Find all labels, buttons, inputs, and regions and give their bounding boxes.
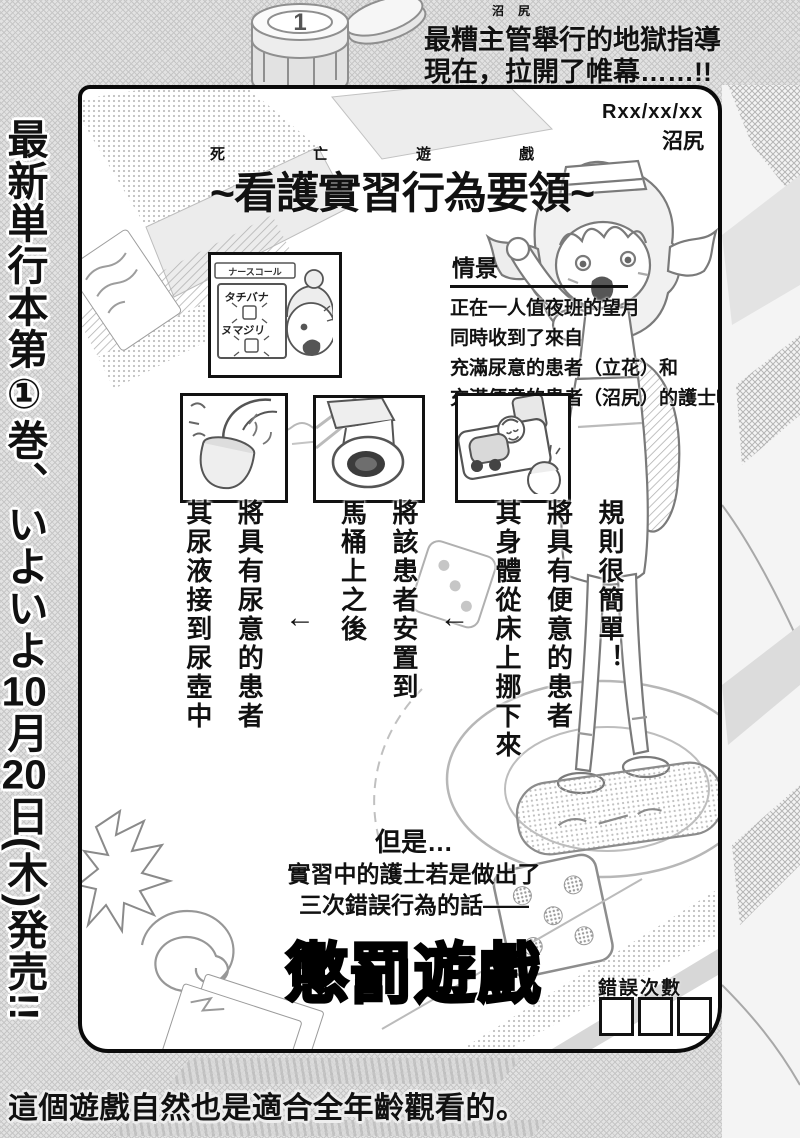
step-arrow-icon: ← — [285, 601, 315, 829]
bed-step-panel — [455, 393, 571, 503]
toilet-step-panel — [313, 395, 425, 503]
rule-step2-line2: 馬桶上之後 — [337, 499, 367, 829]
date-label: Rxx/xx/xx — [602, 101, 703, 124]
mistake-counter-boxes — [599, 997, 712, 1036]
banner-day-number: 10 — [1, 671, 47, 712]
author-signature: 沼尻 — [662, 125, 704, 155]
rule-step1-line2: 其身體從床上挪下來 — [491, 499, 521, 829]
penalty-but: 但是… — [224, 822, 604, 859]
penalty-game-title: 懲罰遊戲 — [224, 921, 604, 1016]
rule-step2-line1: 將該患者安置到 — [388, 499, 418, 829]
banner-part1: 最新単行本第①巻、いよいよ — [1, 118, 47, 671]
urinal-step-panel — [180, 393, 288, 503]
penalty-block: 但是… 實習中的護士若是做出了 三次錯誤行為的話—— 懲罰遊戲 — [224, 822, 604, 1013]
top-banner-furigana: 沼尻 — [492, 2, 544, 19]
speed-streak — [169, 1058, 521, 1084]
page-title: ~看護實習行為要領~ — [122, 159, 682, 221]
rule-step3-line1: 將具有尿意的患者 — [233, 499, 263, 829]
toilet-illustration — [316, 398, 416, 494]
urinal-illustration — [183, 396, 279, 494]
rules-block: 其尿液接到尿壺中 將具有尿意的患者 ← 馬桶上之後 將該患者安置到 ← 其身體從… — [182, 499, 624, 829]
banner-date-number: 20 — [1, 754, 47, 795]
penalty-condition-1: 實習中的護士若是做出了 — [224, 859, 604, 890]
scenario-block: 情景 正在一人值夜班的望月 同時收到了來自 充滿尿意的患者（立花）和 充滿便意的… — [450, 249, 710, 414]
patient-name-1: タチバナ — [224, 290, 269, 304]
top-banner-line2: 現在，拉開了帷幕……!! — [424, 50, 712, 89]
banner-part3: 日(木)発売!! — [1, 795, 47, 1022]
nurse-call-inset-panel: ナースコール タチバナ ヌマジリ — [208, 252, 342, 378]
poker-chips-illustration: 1 — [222, 0, 432, 88]
mistake-counter-label: 錯誤次數 — [598, 973, 682, 1000]
banner-part2: 月 — [1, 712, 47, 754]
rule-step1-line1: 將具有便意的患者 — [543, 499, 573, 829]
nurse-call-illustration: ナースコール タチバナ ヌマジリ — [211, 255, 333, 369]
bed-illustration — [458, 396, 562, 494]
scenario-line: 充滿尿意的患者（立花）和 — [450, 354, 710, 384]
mistake-checkbox — [599, 997, 634, 1036]
mistake-checkbox — [638, 997, 673, 1036]
patient-name-2: ヌマジリ — [220, 324, 265, 337]
scenario-line: 同時收到了來自 — [450, 324, 710, 354]
mistake-checkbox — [677, 997, 712, 1036]
main-panel: Rxx/xx/xx 沼尻 死亡遊戲 ~看護實習行為要領~ ナースコール タチバナ… — [78, 85, 722, 1053]
volume-release-banner: 最新単行本第①巻、いよいよ10月20日(木)発売!! — [2, 118, 45, 1076]
nurse-call-sign: ナースコール — [228, 267, 282, 277]
rule-step3-line2: 其尿液接到尿壺中 — [182, 499, 212, 829]
penalty-condition-2: 三次錯誤行為的話—— — [224, 890, 604, 921]
scenario-line: 正在一人值夜班的望月 — [450, 294, 710, 324]
right-margin-artwork — [722, 85, 800, 1138]
step-arrow-icon: ← — [440, 601, 470, 829]
rules-intro: 規則很簡單！ — [594, 499, 624, 829]
scenario-heading: 情景 — [450, 249, 628, 288]
bottom-caption: 這個遊戲自然也是適合全年齡觀看的。 — [8, 1083, 527, 1127]
chip-number: 1 — [293, 9, 306, 36]
manga-page: { "top_banner": { "furigana": "沼尻", "lin… — [0, 0, 800, 1138]
